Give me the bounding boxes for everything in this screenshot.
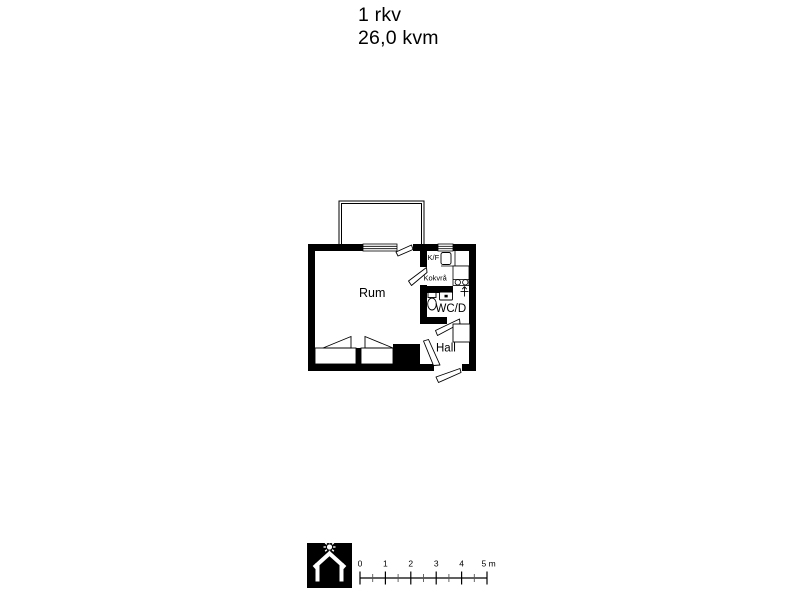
- sun-icon: [324, 541, 336, 553]
- hob-burner-left: [455, 280, 460, 285]
- closet-right: [361, 348, 393, 364]
- hob-burner-right: [463, 280, 468, 285]
- scale-label-2: 2: [408, 559, 413, 569]
- housing-company-logo: [307, 541, 352, 588]
- balcony-outer-rail: [339, 201, 424, 246]
- kitchen-window: [438, 244, 453, 251]
- room-labels: Rum K/F Kokvrå WC/D Hall: [359, 253, 466, 355]
- hall-closet: [453, 324, 470, 342]
- room-label-rum: Rum: [359, 286, 385, 300]
- shower-symbol: [461, 287, 469, 297]
- room-label-hall: Hall: [436, 343, 456, 355]
- scale-bar: 0 1 2 3 4 5 m: [358, 559, 496, 585]
- closet-right-door: [365, 337, 393, 349]
- wall-closet-divider: [356, 348, 361, 364]
- fridge-freezer: [441, 253, 451, 265]
- balcony: [339, 201, 424, 246]
- washbasin-drain: [445, 295, 448, 298]
- room-label-kf: K/F: [428, 253, 440, 262]
- room-label-wcd: WC/D: [436, 303, 467, 315]
- scale-label-1: 1: [383, 559, 388, 569]
- room-label-kokvra: Kokvrå: [424, 274, 448, 283]
- closet-left-door: [323, 337, 351, 349]
- scale-labels: 0 1 2 3 4 5 m: [358, 559, 496, 569]
- wall-left: [308, 244, 315, 371]
- scale-label-0: 0: [358, 559, 363, 569]
- scale-label-5m: 5 m: [482, 559, 496, 569]
- wall-right: [469, 244, 476, 371]
- wall-hall-chunk: [393, 344, 420, 371]
- scale-label-4: 4: [459, 559, 464, 569]
- scale-label-3: 3: [434, 559, 439, 569]
- balcony-inner-rail: [342, 204, 422, 247]
- floorplan-page: 1 rkv 26,0 kvm: [0, 0, 800, 600]
- floor-plan-svg: Rum K/F Kokvrå WC/D Hall: [0, 0, 800, 600]
- closet-left: [315, 348, 356, 364]
- room-window: [363, 244, 397, 251]
- wall-wc-bottom: [420, 317, 447, 324]
- toilet-tank: [428, 293, 436, 298]
